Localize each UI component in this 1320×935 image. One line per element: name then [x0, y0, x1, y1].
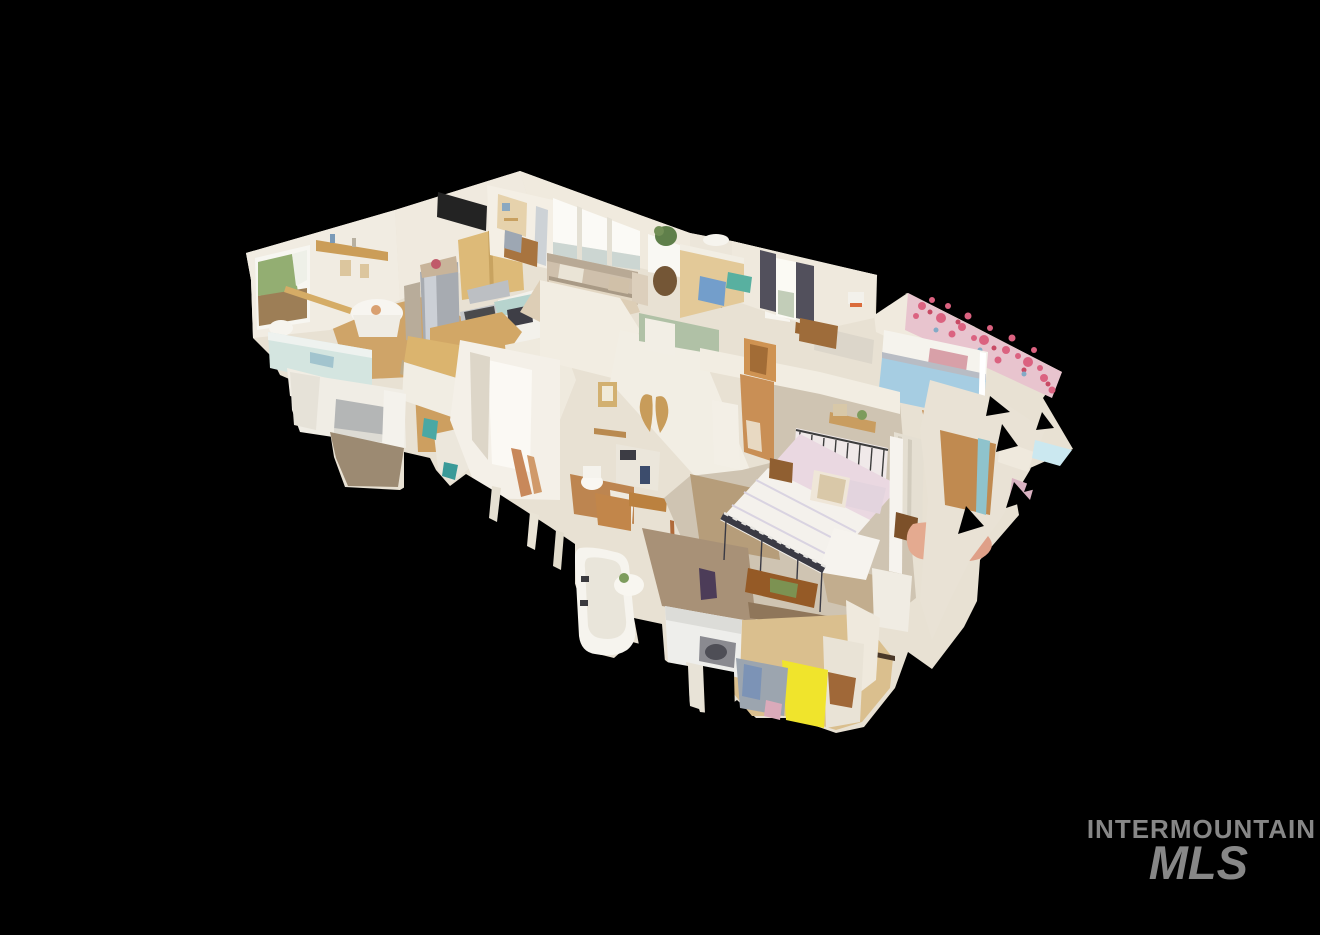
svg-text:MLS: MLS [1149, 836, 1248, 889]
